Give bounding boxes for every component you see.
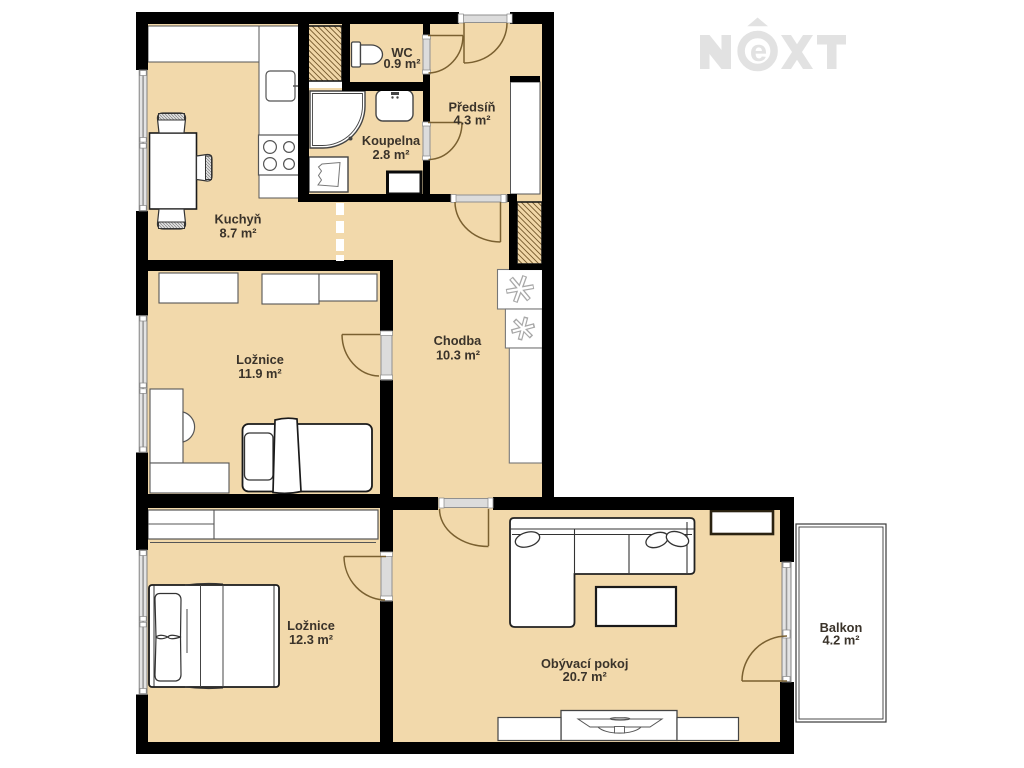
svg-text:4.3 m²: 4.3 m² [454,112,491,127]
svg-text:2.8 m²: 2.8 m² [373,147,410,162]
svg-text:10.3 m²: 10.3 m² [436,347,480,362]
svg-text:20.7 m²: 20.7 m² [563,669,607,684]
svg-text:12.3 m²: 12.3 m² [289,632,333,647]
svg-text:Koupelna: Koupelna [362,133,421,148]
svg-text:11.9 m²: 11.9 m² [238,366,281,381]
svg-text:e: e [750,33,767,68]
svg-text:Ložnice: Ložnice [236,352,284,367]
svg-text:0.9 m²: 0.9 m² [384,56,421,71]
svg-text:4.2 m²: 4.2 m² [823,633,860,648]
svg-text:Chodba: Chodba [434,333,483,348]
svg-text:8.7 m²: 8.7 m² [220,226,257,241]
svg-text:Ložnice: Ložnice [287,618,335,633]
svg-text:Kuchyň: Kuchyň [215,212,262,227]
